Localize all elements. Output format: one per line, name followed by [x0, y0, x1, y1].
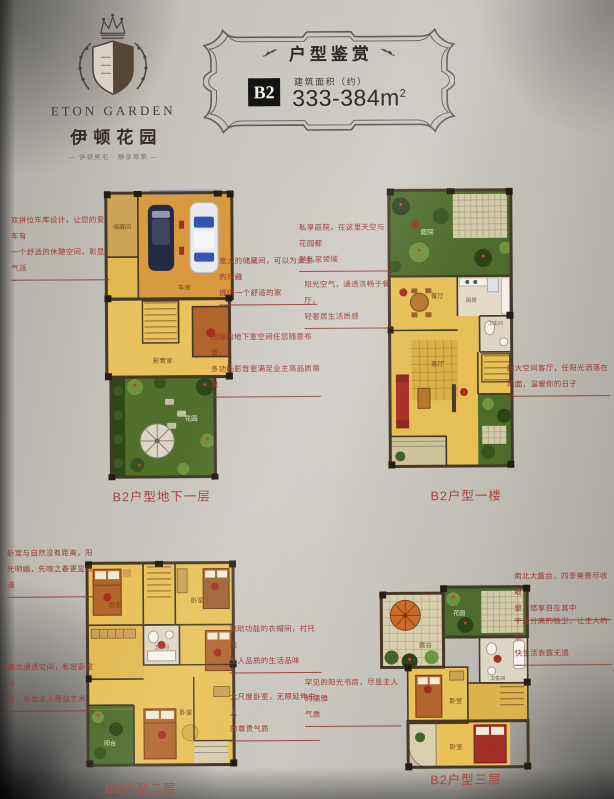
room-label: 花园	[453, 609, 465, 617]
room-label: 客厅	[431, 359, 445, 368]
annotation-living-room: 超大空间客厅，任阳光洒落在 地面，温暖你的日子	[507, 360, 610, 397]
crest-crown-shield-icon	[43, 11, 184, 98]
annotation-line: 计，彰显主人居住艺术	[8, 691, 94, 708]
annotation-line: 双拼位车库设计，让您的爱车有	[11, 212, 109, 245]
annotation-rule	[11, 279, 109, 281]
caption-third-floor: B2户型三层	[430, 769, 501, 788]
annotation-line: 提供一个舒适的家	[219, 285, 317, 302]
annotation-line: 南北大露台，四季美景尽收眼	[514, 568, 611, 601]
annotation-line: 私享庭院，在这里天空与花园都	[299, 219, 391, 252]
annotation-garage: 双拼位车库设计，让您的爱车有 一个舒适的休憩空间，彰显气派	[11, 212, 109, 281]
annotation-line: 辅助功能的衣帽间，衬托出	[229, 621, 321, 654]
room-label: 卧室	[449, 696, 463, 705]
room-label: 卧室	[191, 596, 205, 605]
room-label: 庭院	[420, 227, 434, 236]
room-label: 卧室	[109, 600, 123, 609]
room-label: 储藏间	[113, 223, 131, 231]
annotation-basement-space: 阔绰的地下室空间任您随意布置， 多功能影音室满足业主高品质需求	[211, 329, 321, 398]
annotation-rule	[8, 710, 94, 712]
annotation-rule	[507, 395, 610, 397]
annotation-line: 超大空间客厅，任阳光洒落在	[507, 360, 610, 377]
floor-plan-second: 卧室 卧室 卫生间 卧室 阳台	[85, 556, 238, 775]
unit-code-box: B2	[248, 78, 280, 106]
annotation-line: 气质	[305, 706, 401, 723]
room-label: 卫生间	[488, 320, 503, 327]
annotation-line: 南北通透空间，私密卧室设	[8, 659, 94, 692]
annotation-line: 快生活表露无遗	[515, 645, 612, 662]
annotation-line: 干湿分离的独卫，让主人的愉	[514, 613, 611, 646]
annotation-rule	[515, 664, 612, 666]
annotation-line: 卧室与自然没有距离，阳	[7, 545, 93, 562]
area-number: 333-384m	[292, 84, 400, 111]
area-value: 333-384m2	[292, 84, 406, 112]
annotation-line: 是私家领域	[299, 251, 391, 268]
room-label: 阳台	[104, 739, 116, 747]
room-label: 花园	[185, 414, 198, 423]
car-dark	[148, 205, 174, 271]
room-label: 卫生间	[490, 675, 505, 682]
caption-second-floor: B2户型二层	[105, 778, 176, 797]
annotation-rule	[230, 740, 320, 742]
annotation-line: 罕见的阳光书房，尽显主人的儒雅	[305, 674, 401, 707]
brand-tagline: — 伊顿美宅 · 静享尊荣 —	[38, 151, 188, 162]
annotation-dining: 阳光空气，通透流畅于餐厅， 轻奢居生活质感	[304, 276, 392, 329]
parasol-icon	[140, 424, 174, 458]
caption-first-floor: B2户型一楼	[431, 485, 502, 504]
annotation-bedroom-nature: 卧室与自然没有距离，阳 光明媚，先嗅之春更显浪漫	[7, 545, 93, 598]
room-label: 卧室	[450, 742, 464, 751]
unit-badge: 户型鉴赏 B2 建筑面积（约） 333-384m2	[203, 26, 456, 136]
annotation-rule	[219, 304, 317, 306]
brand-logo: ETON GARDEN 伊顿花园 — 伊顿美宅 · 静享尊荣 —	[38, 11, 189, 162]
badge-title: 户型鉴赏	[285, 40, 373, 66]
caption-basement: B2户型地下一层	[113, 486, 211, 506]
room-label: 厨房	[466, 296, 478, 304]
brochure-photo: ETON GARDEN 伊顿花园 — 伊顿美宅 · 静享尊荣 — 户型鉴赏	[0, 0, 614, 799]
room-label: 车库	[178, 283, 192, 292]
annotation-line: 一个舒适的休憩空间，彰显气派	[11, 244, 109, 277]
room-label: 影音室	[153, 356, 173, 365]
parasol-icon	[390, 600, 420, 630]
floor-plan-third: 露台 花园 卧室 卫生间 卧室	[379, 585, 532, 772]
room-label: 卫生间	[154, 644, 169, 651]
annotation-cloakroom: 辅助功能的衣帽间，衬托出 主人品质的生活品味	[229, 621, 321, 674]
annotation-line: 光明媚，先嗅之春更显浪漫	[7, 561, 93, 594]
annotation-private-bedroom: 南北通透空间，私密卧室设 计，彰显主人居住艺术	[8, 659, 94, 712]
annotation-rule	[299, 270, 391, 272]
annotation-rule	[7, 596, 93, 598]
annotation-line: 地面，温暖你的日子	[507, 376, 610, 393]
annotation-rule	[305, 327, 393, 329]
annotation-line: 轻奢居生活质感	[304, 308, 392, 325]
brand-name-cn: 伊顿花园	[38, 123, 188, 149]
leaf-ornament-icon	[262, 48, 278, 58]
annotation-bathroom: 干湿分离的独卫，让主人的愉 快生活表露无遗	[514, 613, 611, 666]
annotation-rule	[230, 672, 322, 674]
annotation-line: 多功能影音室满足业主高品质需求	[211, 361, 321, 394]
floor-plan-first: 庭院 餐厅 厨房 卫生间 客厅	[387, 188, 515, 471]
badge-title-row: 户型鉴赏	[203, 39, 455, 66]
room-label: 餐厅	[431, 291, 445, 300]
annotation-rule	[211, 396, 321, 398]
annotation-line: 主人品质的生活品味	[230, 653, 322, 670]
room-label: 露台	[419, 640, 432, 649]
leaf-ornament-icon	[380, 47, 396, 57]
brand-name-en: ETON GARDEN	[38, 103, 188, 120]
annotation-line: 阔绰的地下室空间任您随意布置，	[211, 329, 321, 362]
car-white	[190, 203, 218, 273]
annotation-study: 罕见的阳光书房，尽显主人的儒雅 气质	[305, 674, 401, 727]
area-superscript: 2	[400, 88, 407, 100]
annotation-courtyard: 私享庭院，在这里天空与花园都 是私家领域	[299, 219, 391, 272]
annotation-line: 阳光空气，通透流畅于餐厅，	[304, 276, 392, 309]
room-label: 卧室	[179, 708, 193, 717]
